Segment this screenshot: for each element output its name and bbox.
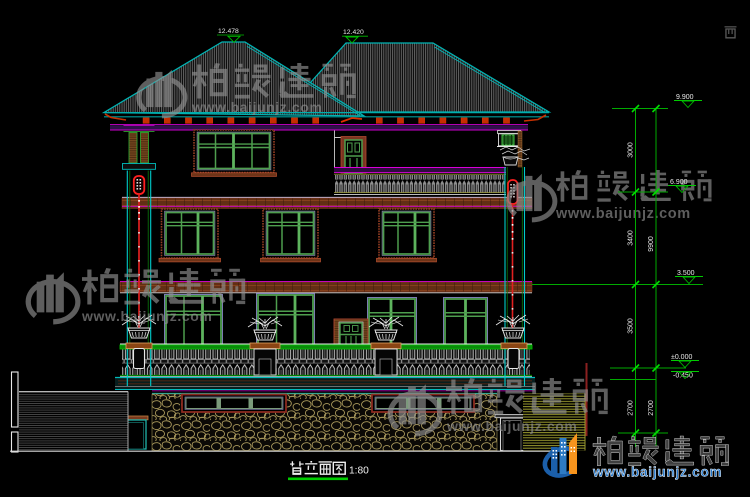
svg-text:12.420: 12.420 (343, 29, 364, 36)
svg-text:www.baijunjz.com: www.baijunjz.com (446, 418, 577, 434)
svg-text:www.baijunjz.com: www.baijunjz.com (81, 308, 212, 324)
svg-text:3500: 3500 (628, 318, 635, 334)
svg-text:2700: 2700 (648, 400, 655, 416)
svg-text:9900: 9900 (648, 236, 655, 252)
svg-text:12.478: 12.478 (218, 28, 239, 35)
svg-text:www.baijunjz.com: www.baijunjz.com (592, 465, 722, 480)
svg-text:1:80: 1:80 (349, 466, 369, 477)
svg-text:2700: 2700 (628, 400, 635, 416)
svg-text:3000: 3000 (628, 142, 635, 158)
svg-text:±0.000: ±0.000 (671, 354, 692, 361)
svg-text:www.baijunjz.com: www.baijunjz.com (191, 99, 322, 115)
svg-text:www.baijunjz.com: www.baijunjz.com (555, 206, 691, 222)
svg-text:3400: 3400 (628, 230, 635, 246)
svg-text:3.500: 3.500 (677, 270, 695, 277)
svg-text:6.900: 6.900 (670, 179, 688, 186)
svg-text:9.900: 9.900 (676, 94, 694, 101)
